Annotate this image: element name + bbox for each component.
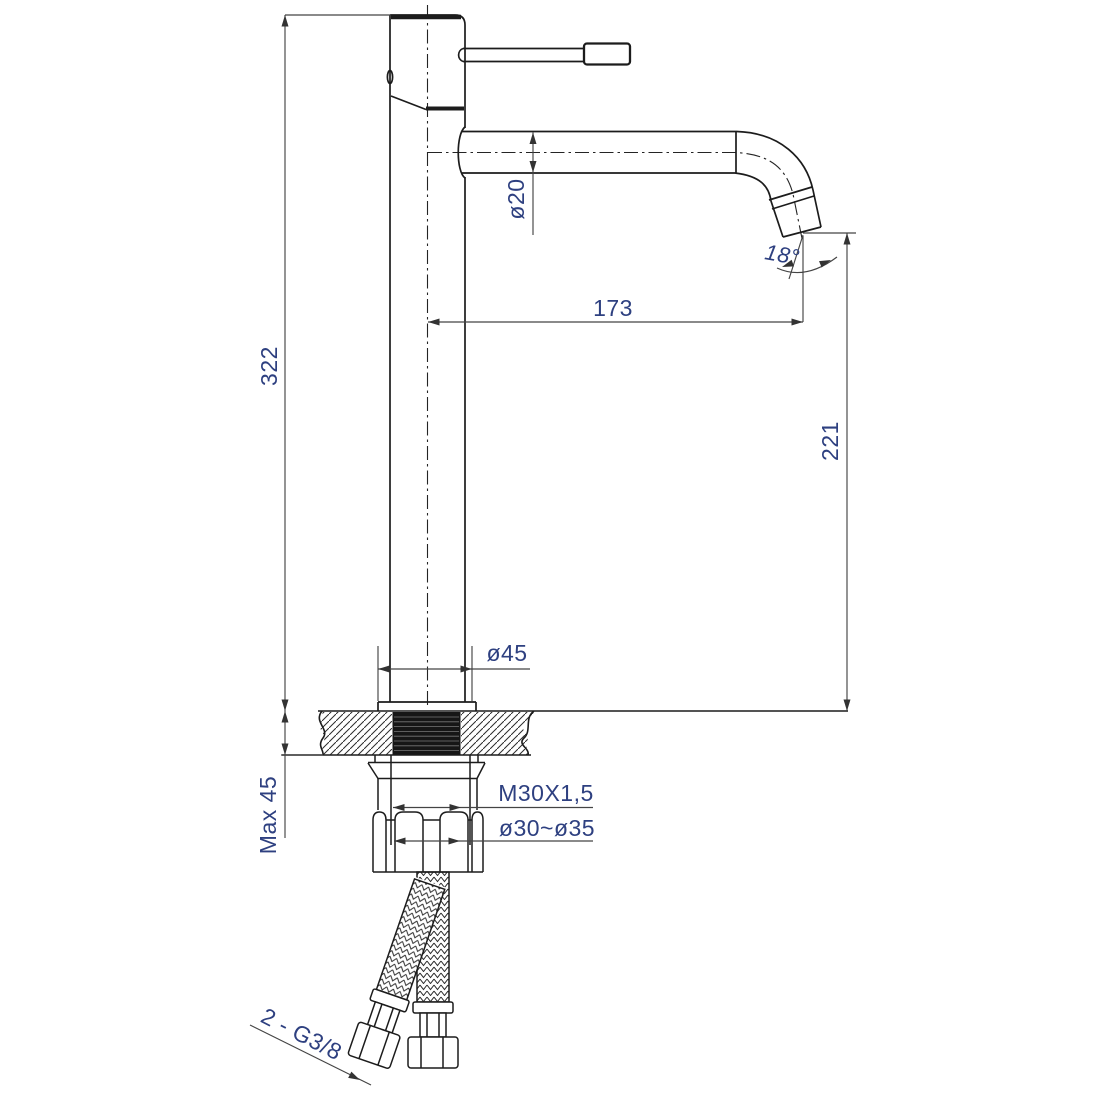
hex-nut-right	[408, 1037, 458, 1068]
dimension-lines	[250, 15, 856, 1085]
dimension-labels: 322 Max 45 ø20 173 18° 221 ø45 M30X1,5 ø…	[255, 178, 843, 1065]
spout-outlet-face	[783, 227, 821, 237]
technical-drawing-canvas: 322 Max 45 ø20 173 18° 221 ø45 M30X1,5 ø…	[0, 0, 1100, 1100]
dimension-arrowheads	[282, 15, 851, 1083]
dim-hole-diameter-label: ø30~ø35	[499, 815, 595, 841]
spout-outer-bend	[737, 132, 821, 228]
dim-base-diameter-label: ø45	[486, 640, 527, 666]
threaded-shank-section	[393, 712, 461, 755]
dim-spout-diameter-label: ø20	[503, 178, 529, 219]
lever-rod	[463, 49, 585, 62]
counter-hatch-right	[461, 712, 534, 755]
spout-inner-bend	[735, 173, 783, 237]
countertop-section	[282, 711, 848, 755]
dim-total-height-label: 322	[256, 346, 282, 386]
nut-lobe-4	[472, 812, 483, 872]
head-skirt-line	[391, 96, 426, 110]
cone-washer-taper	[368, 763, 485, 779]
dim-max-deck-thickness-label: Max 45	[255, 776, 281, 854]
nut-lobe-1	[373, 812, 386, 872]
dim-thread-spec-label: M30X1,5	[498, 780, 594, 806]
lever-rod-cap	[459, 49, 463, 62]
spout-centerline	[428, 153, 803, 242]
ext-lines-o45	[378, 646, 472, 701]
centerlines	[428, 5, 803, 708]
dim-outlet-height-label: 221	[817, 421, 843, 461]
lever-grip	[584, 44, 630, 65]
faucet-outline	[378, 15, 821, 711]
shank-tailpiece-lines	[391, 755, 470, 845]
counter-hatch-left	[320, 712, 392, 755]
mounting-nut-assembly	[368, 755, 485, 872]
dim-hose-connection-label: 2 - G3/8	[257, 1003, 346, 1066]
dim-spout-reach-label: 173	[593, 295, 633, 321]
handle-lever	[459, 44, 630, 65]
hose-collar-right	[413, 1002, 453, 1013]
dim-spout-angle-label: 18°	[763, 239, 802, 270]
nut-collar-sides	[378, 779, 477, 811]
hose-neck-right	[420, 1013, 446, 1037]
faucet-dimension-drawing: 322 Max 45 ø20 173 18° 221 ø45 M30X1,5 ø…	[0, 0, 1100, 1100]
